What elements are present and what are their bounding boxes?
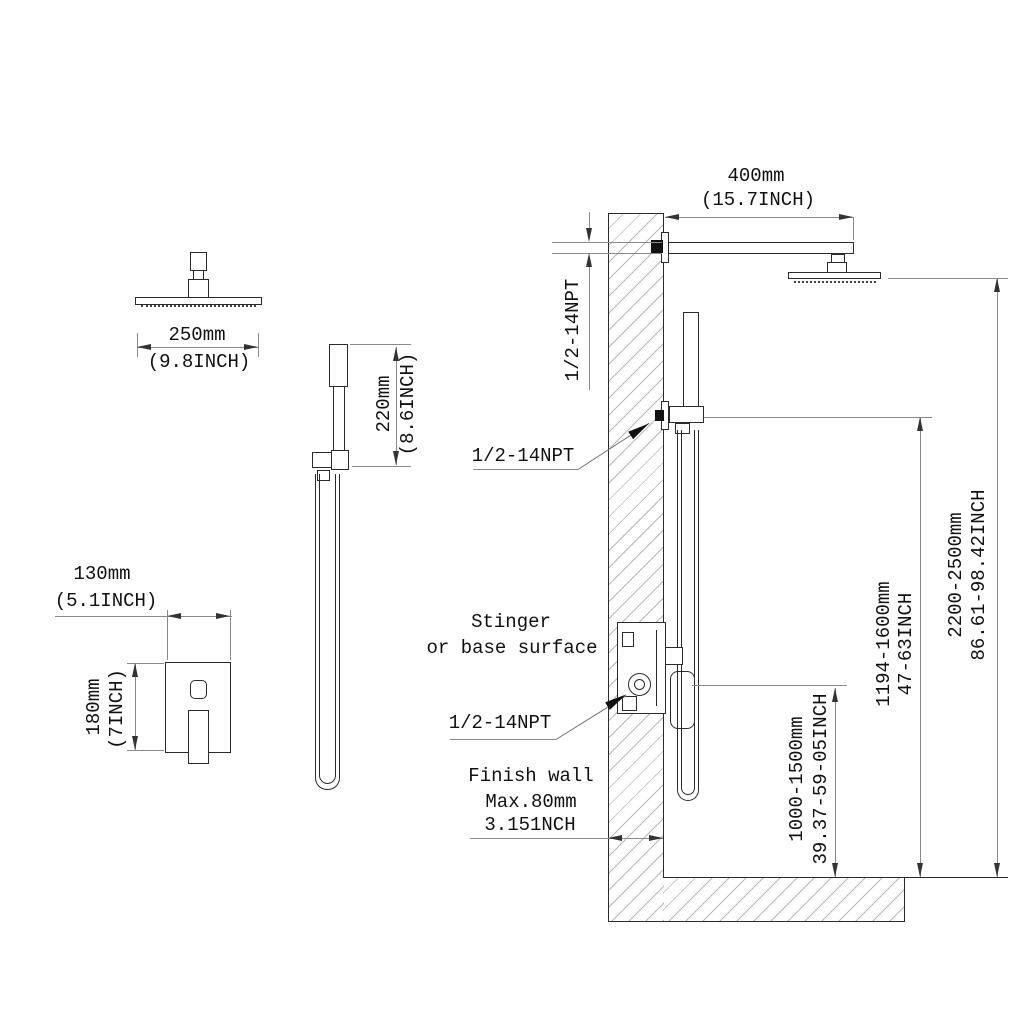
extension-line xyxy=(552,253,662,254)
shower-arm xyxy=(667,242,854,254)
extension-line xyxy=(704,417,932,418)
hand-shower-bracket-left xyxy=(312,452,333,468)
wall-note-line1: Finish wall xyxy=(468,765,593,787)
valve-width-inch: (5.1INCH) xyxy=(55,590,158,612)
wall-top-line xyxy=(608,213,664,214)
hose-inner-loop xyxy=(319,474,336,784)
wall-note-line2: Max.80mm xyxy=(485,791,576,813)
valve-height-inch: (7INCH) xyxy=(106,669,128,749)
hand-shower-bracket-right xyxy=(331,450,349,470)
dimension-line xyxy=(589,267,590,390)
valve-handle xyxy=(188,710,209,764)
rain-head-disc xyxy=(135,297,262,305)
rain-head-width-mm: 250mm xyxy=(168,324,225,346)
valve-mount-height-mm: 1000-1500mm xyxy=(786,716,808,841)
valve-inner-line xyxy=(656,630,657,706)
arrow-up-icon xyxy=(994,278,1000,292)
arrow-down-icon xyxy=(586,228,592,242)
arrow-up-icon xyxy=(832,688,838,702)
extension-line xyxy=(350,344,411,345)
arrow-up-icon xyxy=(586,253,592,267)
rain-head-connector-base xyxy=(188,279,209,298)
dimension-line xyxy=(470,838,663,839)
npt-valve-label: 1/2-14NPT xyxy=(449,712,552,734)
wall-hatch xyxy=(608,213,664,922)
arrow-right-icon xyxy=(649,835,663,841)
wall-note-line3: 3.151NCH xyxy=(484,814,575,836)
leader-underline xyxy=(450,739,556,740)
extension-line xyxy=(352,466,411,467)
hand-shower-wand xyxy=(333,386,345,453)
hand-wand-side xyxy=(683,312,699,408)
arrow-right-icon xyxy=(244,344,258,350)
valve-mount-height-inch: 39.37-59-05INCH xyxy=(810,693,832,864)
arrow-up-icon xyxy=(132,663,138,677)
rain-head-width-inch: (9.8INCH) xyxy=(148,351,251,373)
floor-right-line xyxy=(904,877,905,922)
extension-line xyxy=(692,685,847,686)
wall-back-line xyxy=(608,213,609,922)
dimension-line xyxy=(55,616,232,617)
rain-head-mount-height-mm: 2200-2500mm xyxy=(945,512,967,637)
dimension-line xyxy=(137,347,258,348)
hand-shower-length-inch: (8.6INCH) xyxy=(397,353,419,456)
valve-handle-side xyxy=(670,671,695,729)
shower-installation-diagram: 250mm (9.8INCH) 220mm (8.6INCH) 130mm (5… xyxy=(0,0,1024,1024)
rain-head-connector-top xyxy=(190,252,207,271)
extension-line xyxy=(888,278,1008,279)
arrow-left-icon xyxy=(665,214,679,220)
dimension-line xyxy=(589,212,590,229)
arrow-left-icon xyxy=(137,344,151,350)
floor-top-line xyxy=(663,877,1008,878)
valve-tab-top xyxy=(622,632,634,647)
ground-bottom-line xyxy=(608,921,905,922)
extension-line xyxy=(552,242,662,243)
arm-length-mm: 400mm xyxy=(727,165,784,187)
arrow-right-icon xyxy=(216,613,230,619)
arrow-left-icon xyxy=(608,835,622,841)
arrow-down-icon xyxy=(832,863,838,877)
surface-note-line1: Stinger xyxy=(471,611,551,633)
dimension-line xyxy=(997,278,998,877)
hand-shower-mount-height-inch: 47-63INCH xyxy=(895,593,917,696)
valve-diverter-button xyxy=(190,680,207,699)
bracket-wall-fitting xyxy=(655,410,664,421)
arm-length-inch: (15.7INCH) xyxy=(701,189,815,211)
extension-line xyxy=(258,333,259,357)
dimension-line xyxy=(835,688,836,877)
arrow-right-icon xyxy=(839,214,853,220)
hand-shower-length-mm: 220mm xyxy=(373,375,395,432)
hand-shower-mount-height-mm: 1194-1600mm xyxy=(873,581,895,706)
npt-arm-label: 1/2-14NPT xyxy=(562,279,584,382)
rain-head-nozzle-ticks xyxy=(141,305,256,307)
rain-head-disc-side xyxy=(788,272,881,279)
npt-hand-shower-label: 1/2-14NPT xyxy=(472,445,575,467)
arrow-up-icon xyxy=(917,417,923,431)
valve-outlet-connector xyxy=(665,647,683,665)
wall-face-line xyxy=(663,213,664,877)
hand-shower-head xyxy=(329,344,348,387)
dimension-line xyxy=(920,417,921,877)
valve-tab-bottom xyxy=(622,696,637,711)
extension-line xyxy=(230,610,231,660)
extension-line xyxy=(127,750,164,751)
floor-hatch xyxy=(663,877,905,922)
extension-line xyxy=(853,217,854,240)
hand-bracket-side xyxy=(669,406,704,423)
arrow-down-icon xyxy=(917,863,923,877)
leader-underline xyxy=(473,469,578,470)
arrow-down-icon xyxy=(994,863,1000,877)
hose-inner-loop-side xyxy=(681,430,695,795)
valve-height-mm: 180mm xyxy=(83,678,105,735)
arrow-down-icon xyxy=(132,736,138,750)
valve-width-mm: 130mm xyxy=(73,563,130,585)
arrow-left-icon xyxy=(167,613,181,619)
surface-note-line2: or base surface xyxy=(426,637,597,659)
dimension-line xyxy=(665,217,853,218)
valve-port-inner xyxy=(634,679,645,690)
rain-head-nozzle-ticks-side xyxy=(794,281,876,283)
rain-head-mount-height-inch: 86.61-98.42INCH xyxy=(968,489,990,660)
